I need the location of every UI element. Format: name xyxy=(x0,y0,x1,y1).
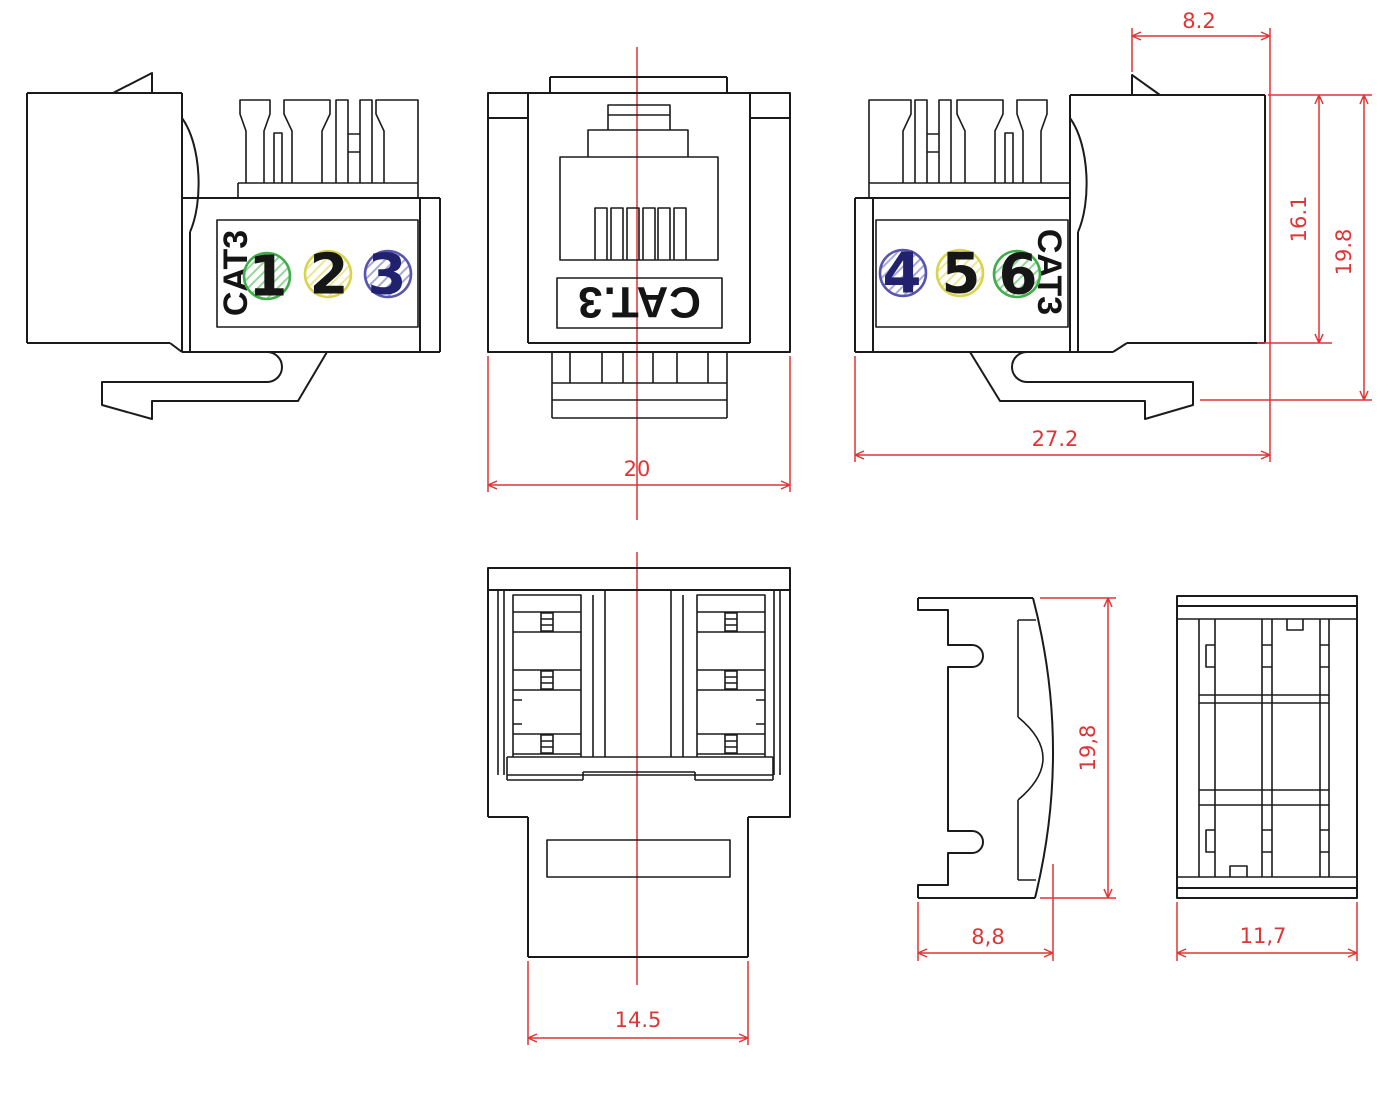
view-top: 14.5 xyxy=(488,552,790,1045)
side-left-latch-hook xyxy=(102,352,327,419)
dimension-rear-width-label: 11,7 xyxy=(1240,924,1287,948)
dimension-front-width-label: 20 xyxy=(624,457,651,481)
port-indicator-1: 1 xyxy=(244,245,290,310)
port-indicator-6: 6 xyxy=(994,243,1040,308)
view-end-profile: 19,8 8,8 xyxy=(918,598,1116,961)
top-label-window xyxy=(547,840,730,877)
view-rear: 11,7 xyxy=(1177,596,1357,961)
dimension-body-height-label: 16.1 xyxy=(1287,196,1311,243)
side-right-idc-comb xyxy=(869,100,1070,198)
profile-inner-edge xyxy=(1018,620,1043,880)
port-indicator-2: 2 xyxy=(305,243,351,308)
top-body-outline xyxy=(488,568,790,957)
dimension-profile-depth-label: 8,8 xyxy=(971,925,1004,949)
dimension-overall-depth-label: 27.2 xyxy=(1032,427,1079,451)
dimension-body-height: 16.1 xyxy=(1257,95,1372,343)
technical-drawing: CAT3 1 2 3 CAT.3 20 CAT3 xyxy=(0,0,1400,1100)
dimension-rear-width: 11,7 xyxy=(1177,902,1357,961)
dimension-overall-depth: 27.2 xyxy=(855,356,1270,462)
dimension-profile-height: 19,8 xyxy=(1040,598,1116,898)
port-number-1: 1 xyxy=(249,245,288,310)
front-marking-label: CAT.3 xyxy=(577,278,701,327)
port-number-2: 2 xyxy=(310,243,349,308)
view-front: CAT.3 20 xyxy=(488,47,790,520)
dimension-profile-height-label: 19,8 xyxy=(1076,725,1100,772)
port-indicator-5: 5 xyxy=(937,242,983,307)
top-idc-detail xyxy=(498,590,780,780)
port-number-6: 6 xyxy=(999,243,1038,308)
port-indicator-4: 4 xyxy=(880,242,926,307)
drawing-canvas: CAT3 1 2 3 CAT.3 20 CAT3 xyxy=(0,0,1400,1100)
view-side-right: CAT3 4 5 6 8.2 16.1 19.8 27.2 xyxy=(855,9,1372,462)
dimension-profile-depth: 8,8 xyxy=(918,864,1053,961)
front-bottom-comb xyxy=(552,352,727,418)
port-number-5: 5 xyxy=(942,242,981,307)
dimension-stem-width-label: 14.5 xyxy=(615,1008,662,1032)
dimension-front-width: 20 xyxy=(488,356,790,492)
view-side-left: CAT3 1 2 3 xyxy=(27,73,440,419)
dimension-overall-height: 19.8 xyxy=(1200,95,1372,400)
dimension-stem-width: 14.5 xyxy=(528,961,748,1045)
port-number-4: 4 xyxy=(883,242,922,307)
side-right-latch-hook xyxy=(970,352,1193,419)
rear-grid xyxy=(1177,619,1357,877)
front-rj-opening xyxy=(560,105,718,260)
port-number-3: 3 xyxy=(368,243,407,308)
side-left-idc-comb xyxy=(238,100,418,198)
port-indicator-3: 3 xyxy=(365,243,411,308)
dimension-overall-height-label: 19.8 xyxy=(1332,229,1356,276)
profile-outline xyxy=(918,598,1053,898)
dimension-nose-depth: 8.2 xyxy=(1132,9,1270,462)
dimension-nose-depth-label: 8.2 xyxy=(1182,9,1215,33)
